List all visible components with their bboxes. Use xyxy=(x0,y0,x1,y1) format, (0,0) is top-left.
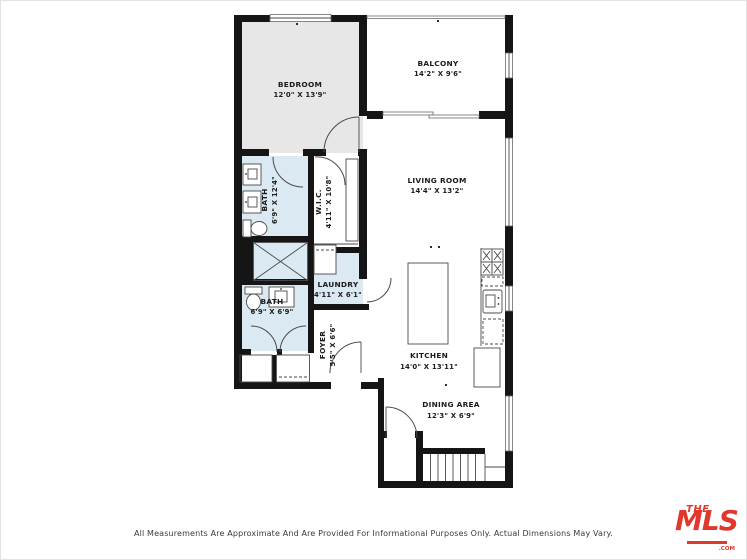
room-dims-living-room: 14'4" X 13'2" xyxy=(411,187,464,195)
room-dims-dining-area: 12'3" X 6'9" xyxy=(427,412,475,420)
room-dims-bedroom: 12'0" X 13'9" xyxy=(274,91,327,99)
mls-logo-tm: ™ xyxy=(726,510,732,517)
sink-icon xyxy=(243,164,261,185)
sink-icon xyxy=(243,191,261,213)
stove-icon xyxy=(481,249,503,286)
room-dims-balcony: 14'2" X 9'6" xyxy=(414,70,462,78)
room-label-living-room: LIVING ROOM xyxy=(407,176,466,185)
room-label-kitchen: KITCHEN xyxy=(410,351,448,360)
room-label-laundry: LAUNDRY xyxy=(318,280,359,289)
mls-logo-com: .COM xyxy=(719,546,735,552)
room-dims-laundry: 4'11" X 6'1" xyxy=(314,291,362,299)
kitchen-island xyxy=(408,263,448,344)
mls-logo-underline xyxy=(687,541,727,544)
room-label-balcony: BALCONY xyxy=(417,59,458,68)
door-arc-dining xyxy=(386,407,417,438)
floor-plan: BEDROOM 12'0" X 13'9" BALCONY 14'2" X 9'… xyxy=(1,1,747,560)
room-label-foyer: FOYER xyxy=(318,331,327,359)
sliding-door xyxy=(383,112,433,115)
kitchen-sink-icon xyxy=(483,290,502,313)
dishwasher-icon xyxy=(483,319,503,344)
balcony-rail xyxy=(367,16,505,18)
refrigerator-icon xyxy=(474,348,500,387)
toilet-icon xyxy=(245,287,262,310)
stairs xyxy=(431,454,506,481)
sliding-door xyxy=(429,115,479,118)
disclaimer-text: All Measurements Are Approximate And Are… xyxy=(1,529,746,538)
mls-logo: THE MLS ™ .COM xyxy=(673,503,735,555)
floor-plan-page: BEDROOM 12'0" X 13'9" BALCONY 14'2" X 9'… xyxy=(0,0,747,560)
room-dims-bath-primary: 6'9" X 12'4" xyxy=(271,176,279,224)
room-dims-bath-second: 6'9" X 6'9" xyxy=(251,308,294,316)
room-label-bath-second: BATH xyxy=(260,297,283,306)
door-arc-laundry xyxy=(367,278,391,302)
room-label-bath-primary: BATH xyxy=(260,188,269,211)
room-dims-kitchen: 14'0" X 13'11" xyxy=(400,363,458,371)
room-dims-wic: 4'11" X 10'8" xyxy=(325,176,333,229)
room-dims-foyer: 5'5" X 6'6" xyxy=(329,324,337,367)
toilet-icon xyxy=(243,220,267,237)
room-label-dining-area: DINING AREA xyxy=(422,400,480,409)
room-label-wic: W.I.C. xyxy=(314,189,323,215)
room-label-bedroom: BEDROOM xyxy=(278,80,322,89)
